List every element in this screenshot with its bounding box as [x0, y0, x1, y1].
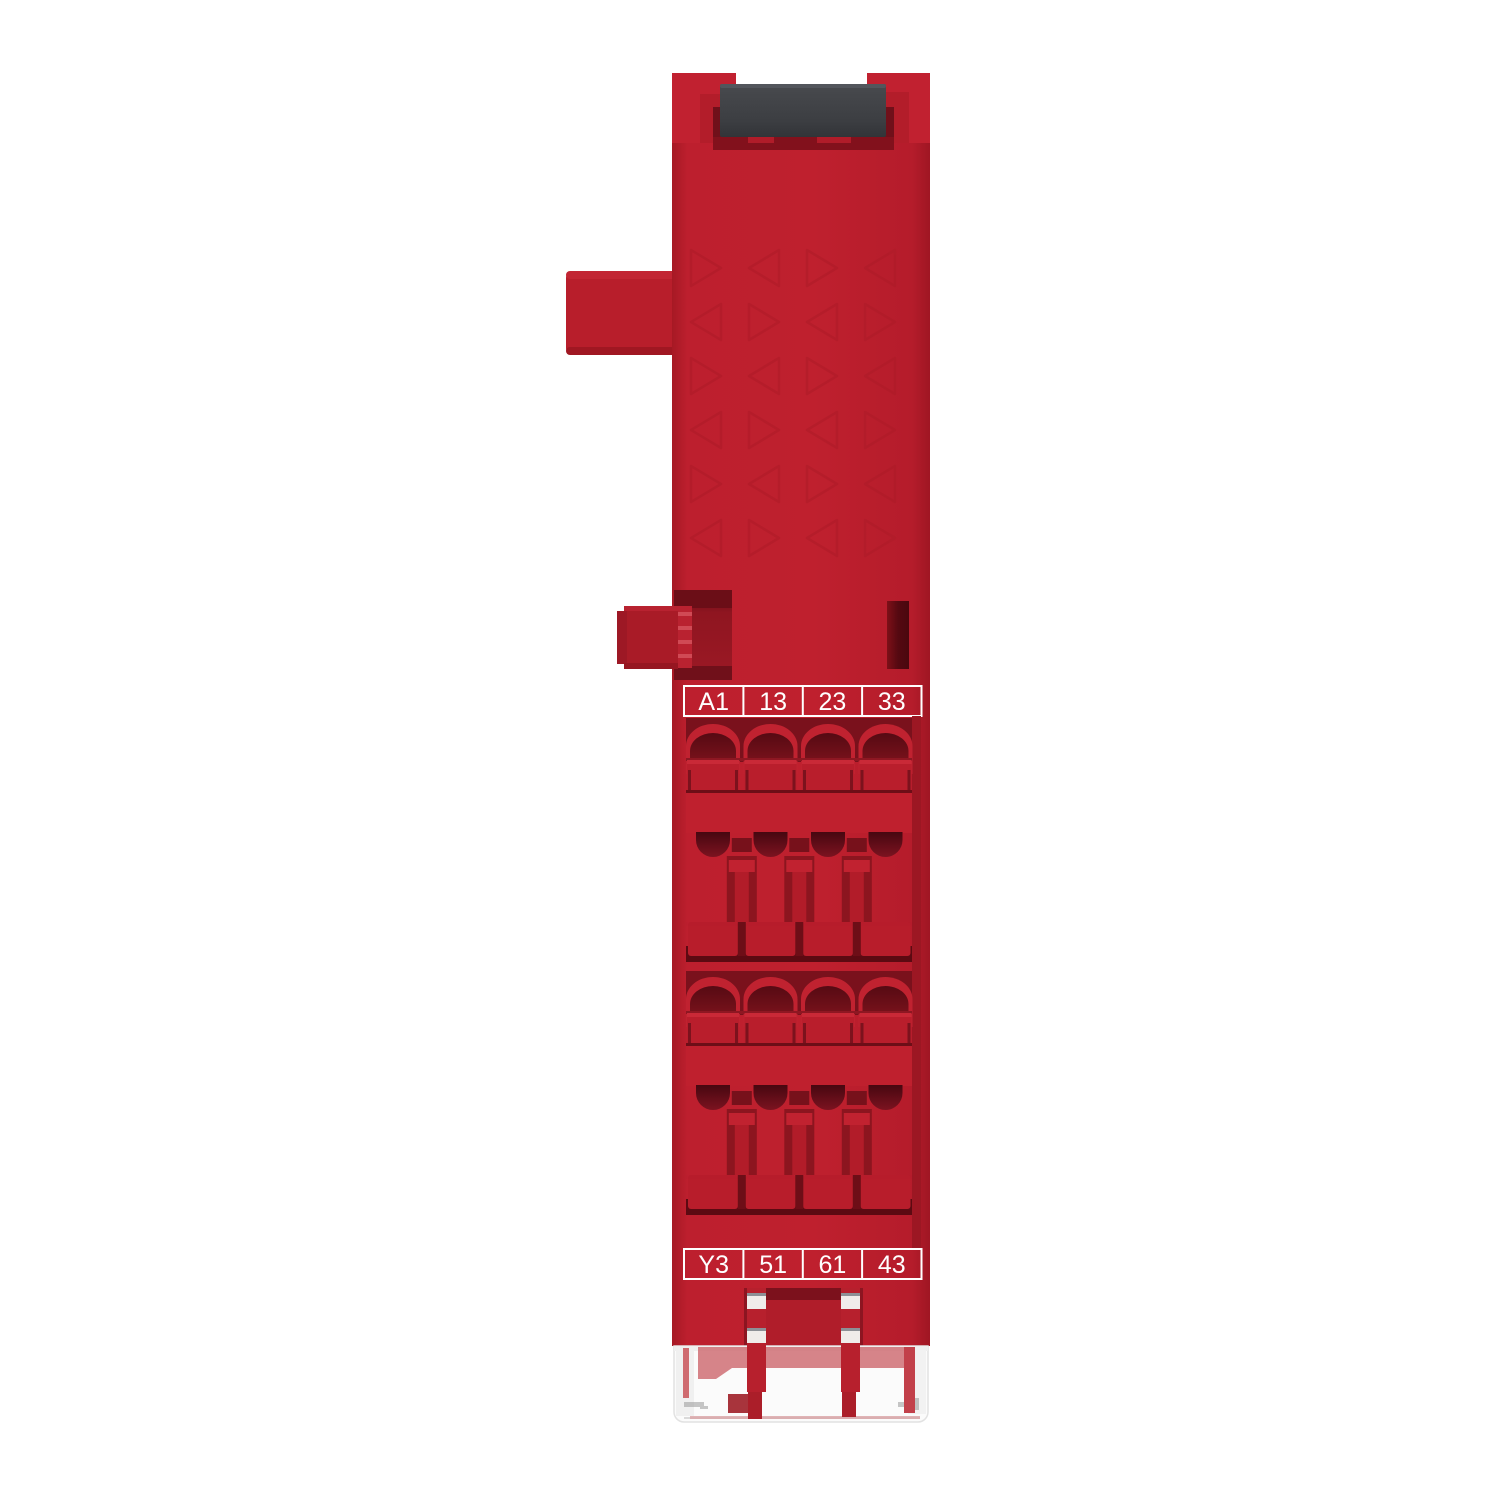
- svg-text:33: 33: [878, 688, 906, 716]
- svg-text:51: 51: [759, 1251, 787, 1279]
- svg-text:43: 43: [878, 1251, 906, 1279]
- svg-text:61: 61: [818, 1251, 846, 1279]
- svg-text:13: 13: [759, 688, 787, 716]
- svg-text:23: 23: [818, 688, 846, 716]
- svg-text:A1: A1: [698, 688, 729, 716]
- svg-text:Y3: Y3: [698, 1251, 729, 1279]
